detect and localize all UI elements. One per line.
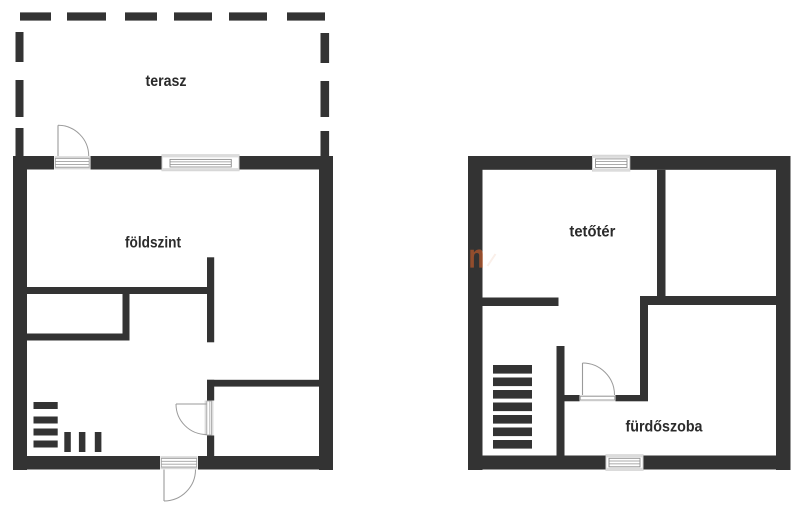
svg-text:terasz: terasz bbox=[146, 73, 187, 90]
svg-text:földszint: földszint bbox=[125, 235, 182, 252]
svg-text:tetőtér: tetőtér bbox=[569, 224, 615, 241]
svg-text:fürdőszoba: fürdőszoba bbox=[626, 419, 703, 436]
